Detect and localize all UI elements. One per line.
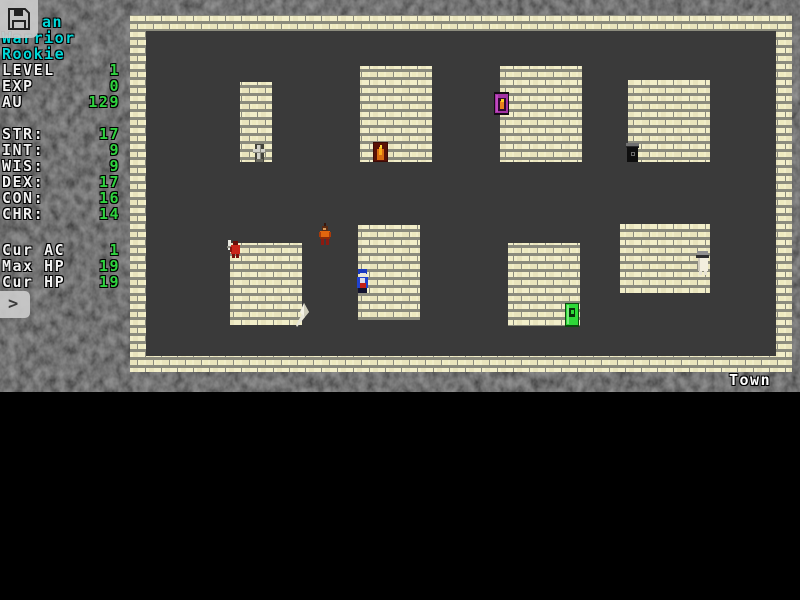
stat-row-curhp: Cur HP19 bbox=[2, 274, 120, 290]
stat-label: LEVEL bbox=[2, 62, 55, 78]
building-4[interactable] bbox=[628, 80, 710, 162]
wall-top bbox=[130, 15, 792, 31]
chevron-right-icon: > bbox=[8, 294, 18, 314]
green-door-sprite[interactable] bbox=[565, 303, 579, 327]
building-8[interactable] bbox=[620, 224, 710, 293]
stat-value: 9 bbox=[109, 142, 120, 158]
stat-row-maxhp: Max HP19 bbox=[2, 258, 120, 274]
stat-value: 1 bbox=[109, 242, 120, 258]
building-3[interactable] bbox=[500, 66, 582, 162]
stat-row-con: CON:16 bbox=[2, 190, 120, 206]
stat-row-au: AU129 bbox=[2, 94, 120, 110]
town-map[interactable] bbox=[130, 15, 792, 373]
character-title-line: Rookie bbox=[2, 46, 120, 62]
stat-label: Cur AC bbox=[2, 242, 65, 258]
stat-label: CHR: bbox=[2, 206, 44, 222]
stat-value: 19 bbox=[99, 274, 120, 290]
stat-label: INT: bbox=[2, 142, 44, 158]
magic-door-sprite[interactable] bbox=[494, 92, 509, 115]
map-region-label: Town bbox=[729, 371, 771, 389]
stat-label: WIS: bbox=[2, 158, 44, 174]
stat-value: 0 bbox=[109, 78, 120, 94]
building-5[interactable] bbox=[230, 243, 302, 325]
wall-bottom bbox=[130, 356, 792, 372]
stat-row-wis: WIS:9 bbox=[2, 158, 120, 174]
building-6[interactable] bbox=[358, 225, 420, 320]
stat-row-str: STR:17 bbox=[2, 126, 120, 142]
stat-value: 17 bbox=[99, 126, 120, 142]
dark-door-sprite[interactable] bbox=[626, 143, 639, 162]
character-title-text: Rookie bbox=[2, 46, 65, 62]
stat-row-chr: CHR:14 bbox=[2, 206, 120, 222]
stat-label: STR: bbox=[2, 126, 44, 142]
stat-label: CON: bbox=[2, 190, 44, 206]
stat-value: 1 bbox=[109, 62, 120, 78]
flame-door-sprite[interactable] bbox=[373, 142, 388, 162]
stat-value: 14 bbox=[99, 206, 120, 222]
save-button[interactable] bbox=[0, 0, 38, 38]
stat-value: 17 bbox=[99, 174, 120, 190]
stat-row-exp: EXP0 bbox=[2, 78, 120, 94]
wall-left bbox=[130, 15, 146, 372]
wall-right bbox=[776, 15, 792, 372]
floppy-disk-icon bbox=[6, 6, 32, 32]
stat-row-level: LEVEL1 bbox=[2, 62, 120, 78]
stat-label: Cur HP bbox=[2, 274, 65, 290]
stat-value: 16 bbox=[99, 190, 120, 206]
stat-label: DEX: bbox=[2, 174, 44, 190]
command-prompt-button[interactable]: > bbox=[0, 291, 30, 318]
blue-npc-sprite[interactable] bbox=[357, 269, 368, 293]
stat-label: EXP bbox=[2, 78, 34, 94]
character-stats-panel: anWarriorRookieLEVEL1EXP0AU129STR:17INT:… bbox=[0, 0, 128, 392]
stat-value: 19 bbox=[99, 258, 120, 274]
stat-value: 129 bbox=[88, 94, 120, 110]
stat-row-dex: DEX:17 bbox=[2, 174, 120, 190]
stat-label: AU bbox=[2, 94, 23, 110]
stat-row-int: INT:9 bbox=[2, 142, 120, 158]
stat-value: 9 bbox=[109, 158, 120, 174]
building-2[interactable] bbox=[360, 66, 432, 162]
stat-row-curac: Cur AC1 bbox=[2, 242, 120, 258]
stat-label: Max HP bbox=[2, 258, 65, 274]
